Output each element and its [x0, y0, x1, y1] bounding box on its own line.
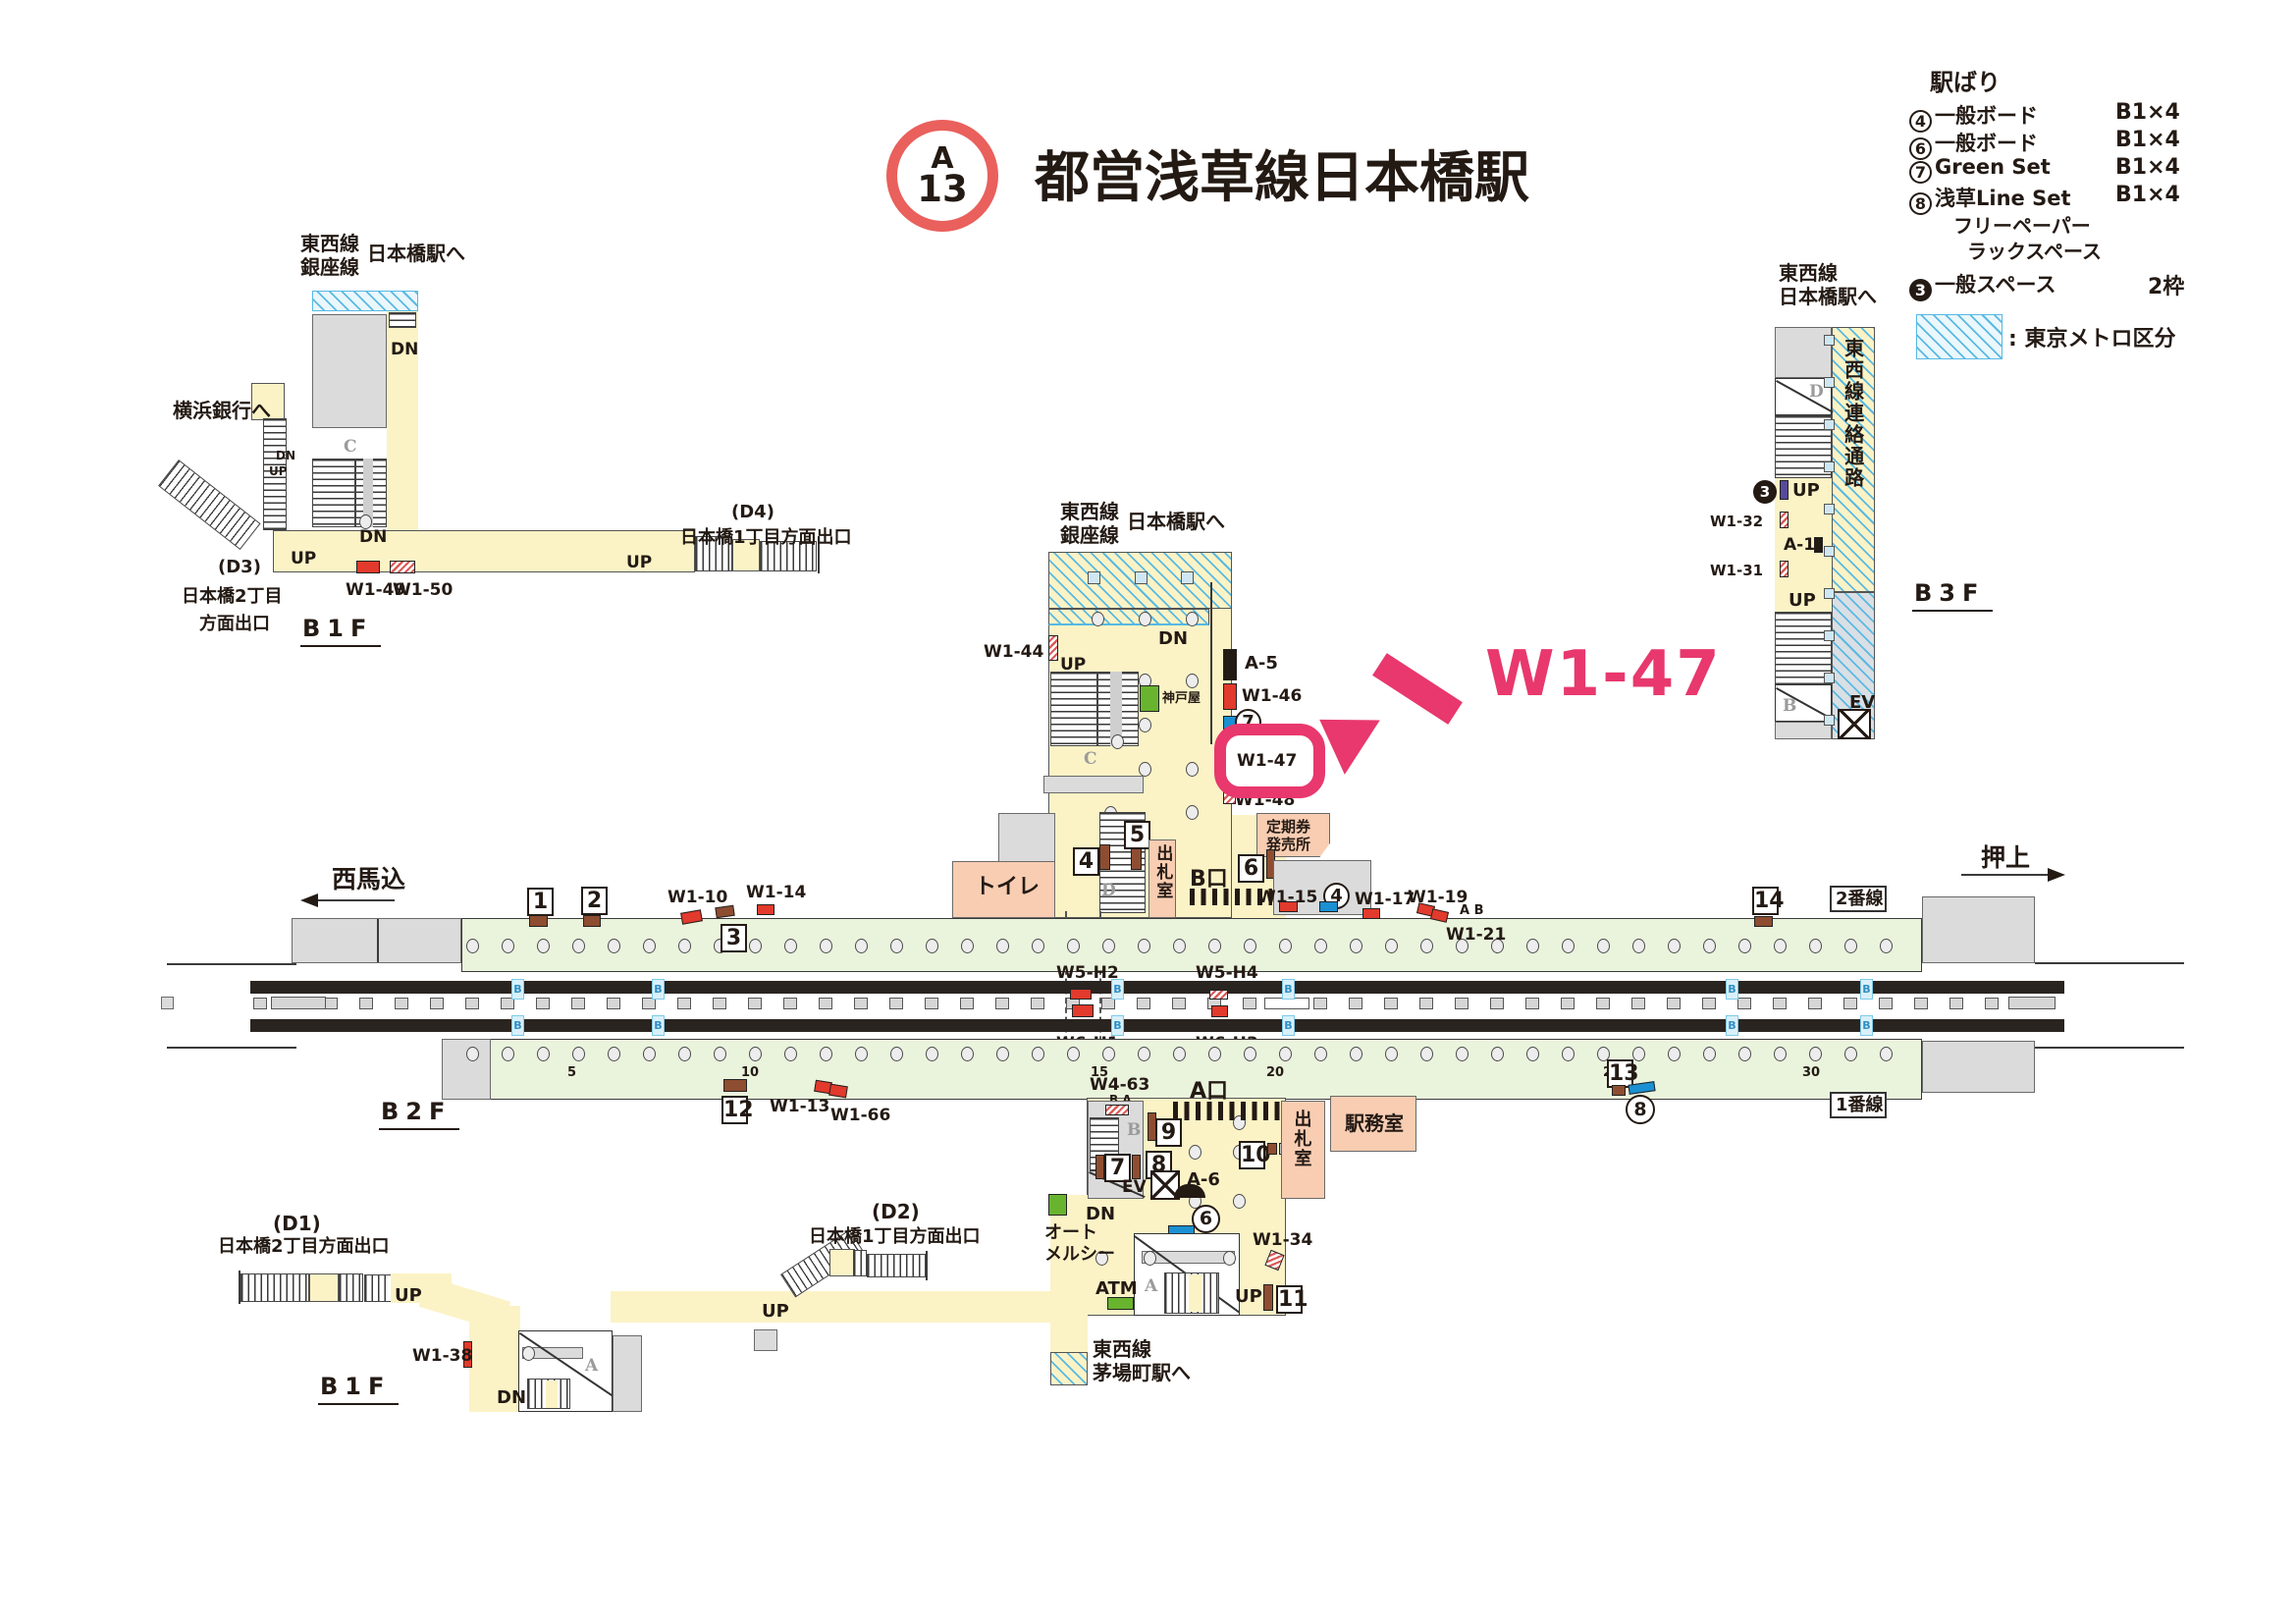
track-tie	[536, 998, 550, 1009]
filled-circled-3-icon: 3	[1909, 279, 1932, 301]
pillar-dot	[1314, 1047, 1327, 1061]
label-w1-14: W1-14	[746, 884, 806, 901]
block-divider	[377, 919, 379, 962]
pillar-dot	[1186, 612, 1199, 626]
label-w4-63: W4-63	[1090, 1076, 1149, 1094]
pillar-dot	[1350, 1047, 1362, 1061]
board-4-box: 4	[1073, 847, 1099, 876]
pillar-dot	[572, 1047, 585, 1061]
metro-area-hatch	[1050, 1352, 1088, 1385]
label-w1-46: W1-46	[1242, 687, 1302, 705]
board-5-box: 5	[1124, 821, 1150, 849]
legend-value: B1×4	[2115, 183, 2180, 207]
tozai-line-label: 東西線	[1060, 502, 1119, 523]
stairs-diagonal	[158, 460, 260, 550]
pillar-dot	[572, 939, 585, 953]
pillar-dot	[1809, 939, 1822, 953]
pillar-dot	[537, 1047, 550, 1061]
ad-a-1-board	[1814, 537, 1823, 553]
ad-board-brown	[1099, 844, 1110, 870]
nishimagome-label: 西馬込	[332, 866, 405, 893]
track-tie	[253, 998, 267, 1009]
to-nihombashi-label: 日本橋駅へ	[1127, 512, 1225, 533]
pillar-dot	[678, 939, 691, 953]
track-tie	[1596, 998, 1610, 1009]
track-tie	[1313, 998, 1327, 1009]
ad-board-brown	[583, 915, 601, 927]
track-tie	[430, 998, 444, 1009]
legend-row-general-space: 3一般スペース 2枠	[1909, 269, 2056, 301]
ticket-issue-room-label: 出札室	[1153, 844, 1171, 915]
pillar-dot	[1774, 1047, 1787, 1061]
pillar-dot	[1233, 1194, 1246, 1209]
stairs	[339, 1273, 363, 1302]
pillar-dot	[1385, 1047, 1398, 1061]
track-tie	[783, 998, 797, 1009]
track-tie	[1455, 998, 1468, 1009]
pillar-dot	[784, 939, 797, 953]
ad-w1-31	[1780, 561, 1789, 577]
pillar-dot	[1314, 939, 1327, 953]
up-label: UP	[1792, 481, 1820, 500]
building-block	[998, 813, 1055, 862]
up-label: UP	[762, 1302, 789, 1321]
track-tie	[960, 998, 974, 1009]
pillar-dot	[1092, 612, 1104, 626]
track-marker-b: B	[1282, 979, 1295, 1000]
w1-47-callout-text: W1-47	[1485, 638, 1722, 711]
pillar-dot	[522, 1346, 535, 1361]
to-nihombashi-label: 日本橋駅へ	[1779, 287, 1877, 308]
circled-6-icon: 6	[1192, 1205, 1220, 1233]
track-tie	[1490, 998, 1504, 1009]
marker-square	[1181, 571, 1194, 584]
pillar-dot	[502, 1047, 514, 1061]
pillar-dot	[820, 939, 832, 953]
arrow-right-icon	[2048, 868, 2065, 882]
track-marker-b: B	[652, 979, 665, 1000]
ad-board-brown	[1095, 1155, 1104, 1179]
pillar-dot	[1420, 939, 1433, 953]
pillar-dot	[1067, 939, 1080, 953]
legend-header: 駅ばり	[1930, 71, 2001, 96]
pillar-dot	[1350, 939, 1362, 953]
pillar-number: 5	[567, 1066, 576, 1080]
ad-board-brown	[1132, 1155, 1141, 1179]
pillar-dot	[714, 1047, 726, 1061]
board-3-box: 3	[721, 924, 747, 952]
floor-label-b1f: B1F	[300, 617, 381, 647]
wall-line	[1210, 582, 1212, 744]
exit-d3-line2: 方面出口	[199, 615, 270, 633]
ad-board-purple	[1780, 480, 1789, 500]
exit-d2-line: 日本橋1丁目方面出口	[809, 1227, 981, 1246]
pillar-dot	[1173, 939, 1186, 953]
ad-w1-17	[1319, 901, 1338, 912]
pillar-dot	[749, 939, 762, 953]
track-tie	[1172, 998, 1186, 1009]
letter-c: C	[1084, 750, 1097, 768]
pillar-dot	[1597, 939, 1610, 953]
dn-label: DN	[276, 450, 295, 462]
legend-label: 浅草Line Set	[1935, 187, 2071, 210]
ad-w5-h4-sign	[1209, 990, 1228, 1000]
stairs	[240, 1273, 309, 1302]
up-label: UP	[1235, 1287, 1262, 1306]
ginza-line-label: 銀座線	[1060, 525, 1119, 547]
exit-d4-code: (D4)	[731, 503, 774, 521]
pillar-dot	[1102, 939, 1115, 953]
pillar-dot	[1111, 734, 1124, 749]
ad-w5-h2-sign	[1070, 989, 1092, 1000]
stair-end-line	[926, 1251, 928, 1280]
pillar-dot	[1824, 335, 1835, 346]
pillar-dot	[926, 939, 938, 953]
stairs	[867, 1254, 926, 1277]
pillar-dot	[996, 939, 1009, 953]
pillar-dot	[1880, 1047, 1893, 1061]
pillar-dot	[1186, 674, 1199, 688]
exit-d4-line: 日本橋1丁目方面出口	[680, 528, 852, 547]
label-w5-h4: W5-H4	[1196, 964, 1258, 982]
pillar-dot	[961, 1047, 974, 1061]
label-w1-66: W1-66	[830, 1107, 890, 1124]
ad-board-brown	[529, 915, 548, 927]
letter-b: B	[1127, 1121, 1141, 1139]
track-tie	[1667, 998, 1681, 1009]
track-tie	[1419, 998, 1433, 1009]
pillar-dot	[1824, 419, 1835, 430]
track-tie	[1879, 998, 1893, 1009]
track-tie	[395, 998, 408, 1009]
pillar-dot	[1632, 1047, 1645, 1061]
pillar-dot	[926, 1047, 938, 1061]
exit-d1-line: 日本橋2丁目方面出口	[218, 1237, 390, 1256]
platform-end-block	[442, 1039, 491, 1100]
pillar-dot	[1420, 1047, 1433, 1061]
pillar-dot	[1279, 1047, 1292, 1061]
pillar-dot	[1824, 715, 1835, 726]
track-tie	[1843, 998, 1857, 1009]
track-tie	[1031, 998, 1044, 1009]
track-tie	[1137, 998, 1150, 1009]
pillar-dot	[1144, 1251, 1156, 1266]
track-tie	[1808, 998, 1822, 1009]
track-tie	[1243, 998, 1256, 1009]
track-tie	[819, 998, 832, 1009]
metro-hatch-swatch	[1916, 314, 2002, 359]
track-tie	[1561, 998, 1575, 1009]
pillar-dot	[502, 939, 514, 953]
letter-d: D	[1101, 882, 1116, 899]
to-kayabacho-label-1: 東西線	[1093, 1339, 1151, 1361]
pillar-dot	[678, 1047, 691, 1061]
dn-label: DN	[497, 1388, 526, 1407]
pillar-dot	[608, 939, 620, 953]
legend-value: 2枠	[2148, 269, 2184, 300]
board-2-box: 2	[581, 887, 608, 915]
up-label: UP	[626, 554, 652, 571]
pillar-number: 10	[741, 1066, 759, 1080]
legend-label: 一般ボード	[1935, 132, 2038, 155]
legend-free-paper-2: ラックスペース	[1967, 242, 2102, 263]
pillar-dot	[1738, 1047, 1751, 1061]
building-block	[754, 1329, 777, 1351]
station-map: A 13 都営浅草線日本橋駅 駅ばり 4一般ボード B1×4 6一般ボード B1…	[0, 0, 2296, 1624]
up-label: UP	[1789, 591, 1816, 610]
platform-end-block	[1922, 1041, 2035, 1093]
pillar-dot	[466, 1047, 479, 1061]
landing	[309, 1273, 339, 1302]
atm-box	[1107, 1297, 1134, 1310]
dn-label: DN	[391, 341, 418, 358]
pillar-number: 30	[1802, 1066, 1820, 1080]
kobeya-label: 神戸屋	[1162, 692, 1201, 706]
legend-value: B1×4	[2115, 128, 2180, 152]
track-tie	[889, 998, 903, 1009]
to-nihombashi-label: 日本橋駅へ	[367, 244, 465, 265]
platform-edge-line	[2035, 1047, 2184, 1049]
track-marker-b: B	[1282, 1015, 1295, 1036]
legend-label: 一般ボード	[1935, 104, 2038, 128]
to-yokohama-bank-label: 横浜銀行へ	[173, 401, 271, 422]
pillar-dot	[1102, 1047, 1115, 1061]
ad-w1-46	[1223, 683, 1237, 710]
track-tie	[1773, 998, 1787, 1009]
track-tie	[571, 998, 585, 1009]
label-w1-21: W1-21	[1446, 926, 1506, 944]
long-tie	[271, 997, 326, 1009]
pillar-dot	[1824, 377, 1835, 388]
legend-free-paper-1: フリーペーパー	[1953, 216, 2091, 238]
label-w1-31: W1-31	[1710, 563, 1763, 578]
pillar-dot	[1703, 939, 1716, 953]
legend-value: B1×4	[2115, 155, 2180, 180]
circled-8-icon: 8	[1909, 192, 1932, 215]
label-w1-17: W1-17	[1355, 891, 1415, 908]
pillar-dot	[1562, 1047, 1575, 1061]
pillar-dot	[961, 939, 974, 953]
ev-label: EV	[1122, 1178, 1147, 1196]
label-w5-h2: W5-H2	[1056, 964, 1119, 982]
pillar-dot	[1738, 939, 1751, 953]
pillar-dot	[1244, 939, 1256, 953]
pillar-dot	[1138, 939, 1150, 953]
ad-w1-44	[1048, 635, 1058, 661]
board-11-box: 11	[1276, 1285, 1303, 1314]
building-block	[613, 1335, 642, 1412]
marker-square	[1135, 571, 1148, 584]
legend-label: 一般スペース	[1935, 273, 2056, 297]
letter-d: D	[1809, 383, 1824, 401]
ticket-issue-room-label: 出札室	[1292, 1110, 1310, 1194]
ad-w1-15	[1279, 901, 1298, 912]
track-tie	[1914, 998, 1928, 1009]
label-w1-34: W1-34	[1253, 1231, 1312, 1249]
ad-a-5	[1223, 649, 1237, 680]
escalator	[853, 1250, 867, 1276]
pillar-dot	[1824, 673, 1835, 683]
pillar-dot	[1186, 805, 1199, 820]
platform-end-block	[1922, 896, 2035, 963]
track-1-label: 1番線	[1836, 1096, 1884, 1114]
dn-label: DN	[359, 528, 387, 546]
pillar-dot	[855, 939, 868, 953]
badge-number: 13	[917, 172, 968, 206]
ginza-line-label: 銀座線	[300, 257, 359, 279]
pillar-dot	[1668, 1047, 1681, 1061]
pillar-dot	[1880, 939, 1893, 953]
board-1-box: 1	[527, 888, 554, 916]
pillar-dot	[1632, 939, 1645, 953]
pillar-dot	[820, 1047, 832, 1061]
tozai-line-label: 東西線	[300, 234, 359, 255]
platform-edge-line	[167, 963, 296, 965]
pillar-dot	[1526, 939, 1539, 953]
direction-arrow-line	[316, 899, 395, 901]
auto-merci-label-2: メルシー	[1044, 1245, 1115, 1264]
circled-8-icon: 8	[1626, 1095, 1655, 1124]
track-tie	[607, 998, 620, 1009]
pillar-dot	[1844, 939, 1857, 953]
pillar-dot	[1139, 612, 1151, 626]
ad-board-brown	[1612, 1085, 1626, 1096]
letter-a: A	[1145, 1277, 1157, 1295]
pillar-number: 20	[1266, 1066, 1284, 1080]
pillar-dot	[1526, 1047, 1539, 1061]
pillar-dot	[1824, 504, 1835, 514]
corridor-marker-squares	[1824, 335, 1835, 728]
pillar-dot	[1032, 1047, 1044, 1061]
ad-board-brown	[723, 1079, 747, 1092]
to-kayabacho-label-2: 茅場町駅へ	[1093, 1363, 1191, 1384]
label-w1-44: W1-44	[984, 643, 1043, 661]
track-2-label: 2番線	[1836, 890, 1884, 908]
pillar-dot	[890, 939, 903, 953]
board-12-box: 12	[721, 1096, 748, 1124]
pillar-dot	[1279, 939, 1292, 953]
up-label: UP	[291, 550, 316, 568]
dn-label: DN	[1158, 629, 1188, 648]
pillar-dot	[784, 1047, 797, 1061]
pillar-dot	[1208, 1047, 1221, 1061]
track-tie	[324, 998, 338, 1009]
ad-board-brown	[1267, 1143, 1277, 1155]
label-a-1: A-1	[1784, 536, 1815, 554]
commuter-pass-office-label-1: 定期券	[1266, 819, 1310, 835]
letter-c: C	[344, 438, 357, 456]
track-tie	[1525, 998, 1539, 1009]
pillar-dot	[1032, 939, 1044, 953]
line-badge-a13: A 13	[886, 120, 998, 232]
exit-d1-code: (D1)	[273, 1214, 321, 1235]
up-label: UP	[269, 465, 288, 478]
floor-label-b1f: B1F	[318, 1375, 399, 1405]
track-tie	[925, 998, 938, 1009]
track-marker-b: B	[1860, 1015, 1873, 1036]
track-tie	[995, 998, 1009, 1009]
track-marker-b: B	[511, 1015, 524, 1036]
ad-board-brown	[1263, 1284, 1273, 1311]
pillar-dot	[1244, 1047, 1256, 1061]
track-tie	[1631, 998, 1645, 1009]
auto-merci-label-1: オート	[1044, 1223, 1097, 1242]
pillar-dot	[890, 1047, 903, 1061]
label-w1-13: W1-13	[770, 1098, 829, 1115]
label-a-5: A-5	[1245, 654, 1278, 673]
track-end-block	[161, 997, 174, 1009]
pillar-dot	[1703, 1047, 1716, 1061]
ad-w1-14	[757, 904, 774, 915]
ad-w1-50	[390, 561, 415, 573]
pillar-dot	[1668, 939, 1681, 953]
auto-merci-shop-box	[1048, 1194, 1067, 1216]
pillar-dot	[1809, 1047, 1822, 1061]
pillar-dot	[1138, 1047, 1150, 1061]
track-tie	[359, 998, 373, 1009]
pillar-dot	[1208, 939, 1221, 953]
pillar-dot	[1824, 461, 1835, 472]
ad-board-red	[1362, 908, 1380, 919]
long-tie	[2008, 997, 2056, 1009]
pillar-dot	[1824, 588, 1835, 599]
ad-w1-32	[1780, 512, 1789, 528]
a-gate-label: A口	[1190, 1080, 1228, 1104]
platform-edge-line	[2035, 962, 2184, 964]
marker-square	[1088, 571, 1100, 584]
filled-circled-3-icon: 3	[1753, 480, 1777, 504]
pillar-dot	[1189, 1145, 1201, 1160]
pillar-dot	[1186, 762, 1199, 777]
label-a-b: A B	[1460, 904, 1484, 918]
label-w1-32: W1-32	[1710, 514, 1763, 529]
track-marker-b: B	[511, 979, 524, 1000]
arrow-left-icon	[300, 893, 318, 907]
ad-board-brown	[715, 905, 734, 919]
stair-slice	[1189, 1274, 1201, 1312]
legend-row: 7Green Set B1×4	[1909, 155, 2051, 184]
corridor	[611, 1291, 1050, 1323]
floor-label-b2f: B2F	[379, 1100, 459, 1130]
track-marker-b: B	[1726, 979, 1738, 1000]
floor-label-b3f: B3F	[1912, 581, 1993, 612]
pillar-dot	[1491, 1047, 1504, 1061]
building-block	[1043, 776, 1144, 793]
ticket-gates	[1173, 1102, 1281, 1120]
letter-a: A	[585, 1357, 598, 1375]
pillar-dot	[1223, 1251, 1236, 1266]
track-marker-b: B	[1860, 979, 1873, 1000]
pillar-dot	[466, 939, 479, 953]
metro-area-hatch	[312, 291, 418, 311]
elevator-icon	[1838, 709, 1871, 739]
dn-label: DN	[1086, 1205, 1115, 1223]
pillar-dot	[1562, 939, 1575, 953]
tozai-line-label: 東西線	[1779, 263, 1838, 285]
pillar-dot	[1456, 1047, 1468, 1061]
ad-board-brown	[1754, 916, 1773, 927]
track-marker-b: B	[1726, 1015, 1738, 1036]
pillar-dot	[1824, 546, 1835, 557]
ad-w1-66	[828, 1084, 848, 1099]
track-tie	[713, 998, 726, 1009]
track-tie	[1349, 998, 1362, 1009]
track-marker-b: B	[1111, 1015, 1124, 1036]
label-w1-38: W1-38	[412, 1347, 472, 1365]
label-w1-10: W1-10	[667, 889, 727, 906]
pillar-dot	[1385, 939, 1398, 953]
ad-w4-63	[1105, 1105, 1129, 1115]
